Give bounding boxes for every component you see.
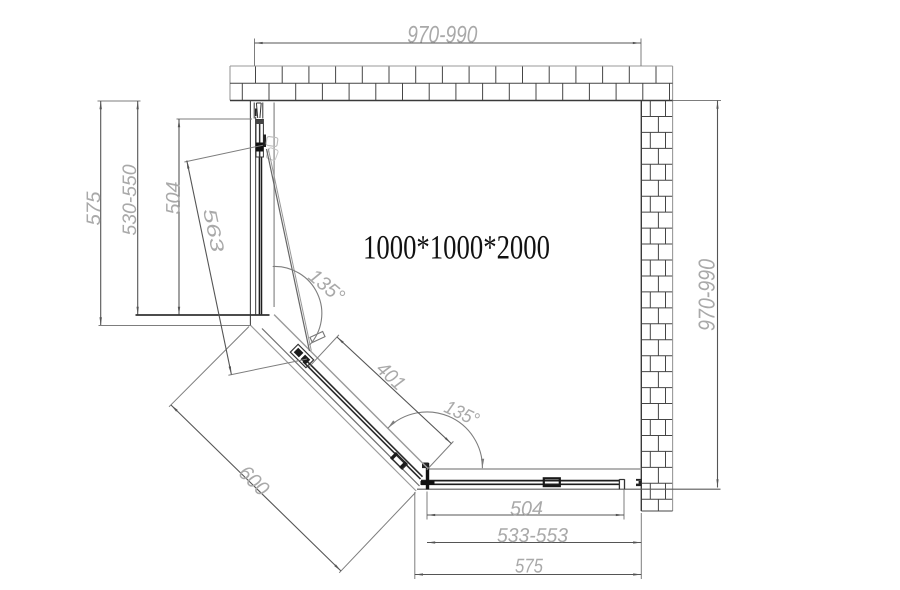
svg-text:970-990: 970-990 — [694, 259, 720, 331]
svg-text:533-553: 533-553 — [497, 525, 568, 547]
svg-text:1000*1000*2000: 1000*1000*2000 — [363, 230, 550, 267]
svg-text:530-550: 530-550 — [119, 164, 141, 235]
svg-text:504: 504 — [510, 498, 543, 520]
svg-text:575: 575 — [515, 555, 544, 577]
svg-text:575: 575 — [83, 191, 105, 225]
svg-text:504: 504 — [162, 181, 184, 214]
svg-text:970-990: 970-990 — [407, 21, 478, 48]
